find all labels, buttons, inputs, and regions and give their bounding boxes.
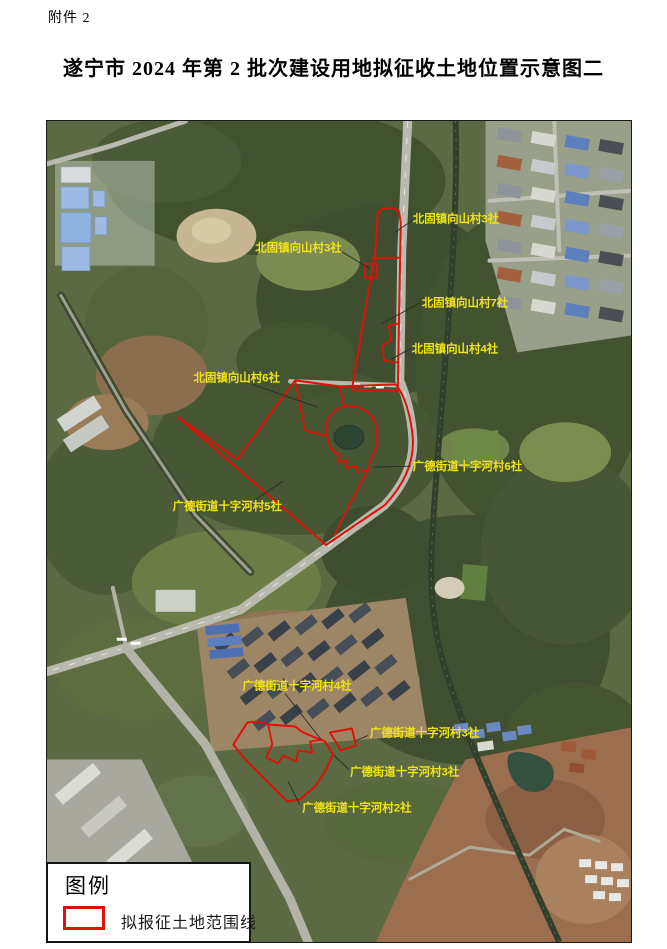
area-label: 广德街道十字河村3社 <box>350 764 460 778</box>
area-label: 广德街道十字河村4社 <box>242 679 352 693</box>
water-pools <box>55 161 155 271</box>
satellite-map: 北固镇向山村3社 北固镇向山村3社 北固镇向山村7社 北固镇向山村4社 北固镇向… <box>46 120 632 943</box>
attachment-label: 附件 2 <box>48 7 91 27</box>
area-label: 广德街道十字河村5社 <box>173 499 283 513</box>
legend-title: 图例 <box>65 870 111 900</box>
document-page: { "document": { "attachment_label": "附件 … <box>0 0 667 949</box>
page-title: 遂宁市 2024 年第 2 批次建设用地拟征收土地位置示意图二 <box>0 52 667 81</box>
legend-item-label: 拟报征土地范围线 <box>121 909 257 933</box>
legend: 图例 拟报征土地范围线 <box>46 862 251 943</box>
area-label: 北固镇向山村4社 <box>412 341 499 355</box>
area-label: 北固镇向山村3社 <box>413 212 500 226</box>
area-label: 北固镇向山村6社 <box>193 370 280 384</box>
area-label: 北固镇向山村7社 <box>422 296 509 310</box>
area-label: 北固镇向山村3社 <box>255 241 342 255</box>
area-label: 广德街道十字河村6社 <box>413 459 523 473</box>
area-label: 广德街道十字河村2社 <box>302 800 412 814</box>
area-label: 广德街道十字河村3社 <box>370 725 480 739</box>
legend-boundary-swatch <box>63 906 105 930</box>
satellite-image: 北固镇向山村3社 北固镇向山村3社 北固镇向山村7社 北固镇向山村4社 北固镇向… <box>47 121 631 942</box>
